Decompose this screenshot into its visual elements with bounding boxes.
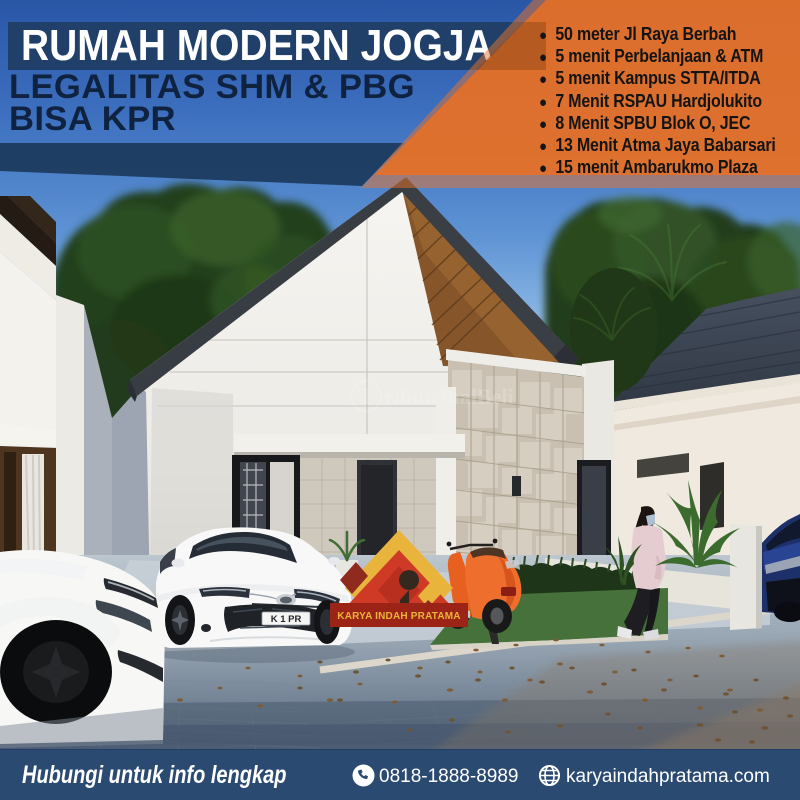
svg-text:ribunJualBeli: ribunJualBeli xyxy=(384,384,514,409)
svg-text:KARYA INDAH PRATAMA: KARYA INDAH PRATAMA xyxy=(337,611,460,622)
svg-text:T: T xyxy=(358,384,374,410)
svg-text:K 1 PR: K 1 PR xyxy=(271,614,302,625)
